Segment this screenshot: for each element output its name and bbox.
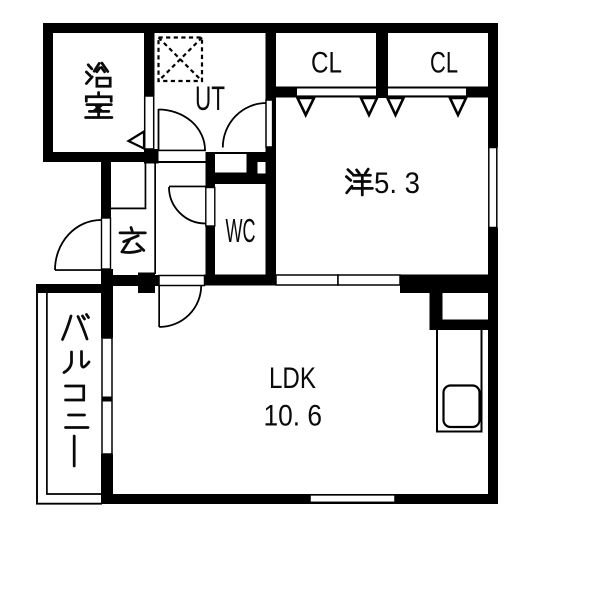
svg-text:LDK: LDK [269, 362, 316, 395]
svg-text:5. 3: 5. 3 [374, 167, 420, 200]
svg-text:UT: UT [195, 80, 225, 118]
svg-text:10. 6: 10. 6 [264, 400, 323, 433]
svg-text:CL: CL [430, 47, 458, 80]
svg-text:WC: WC [226, 212, 256, 249]
svg-text:CL: CL [311, 47, 342, 80]
